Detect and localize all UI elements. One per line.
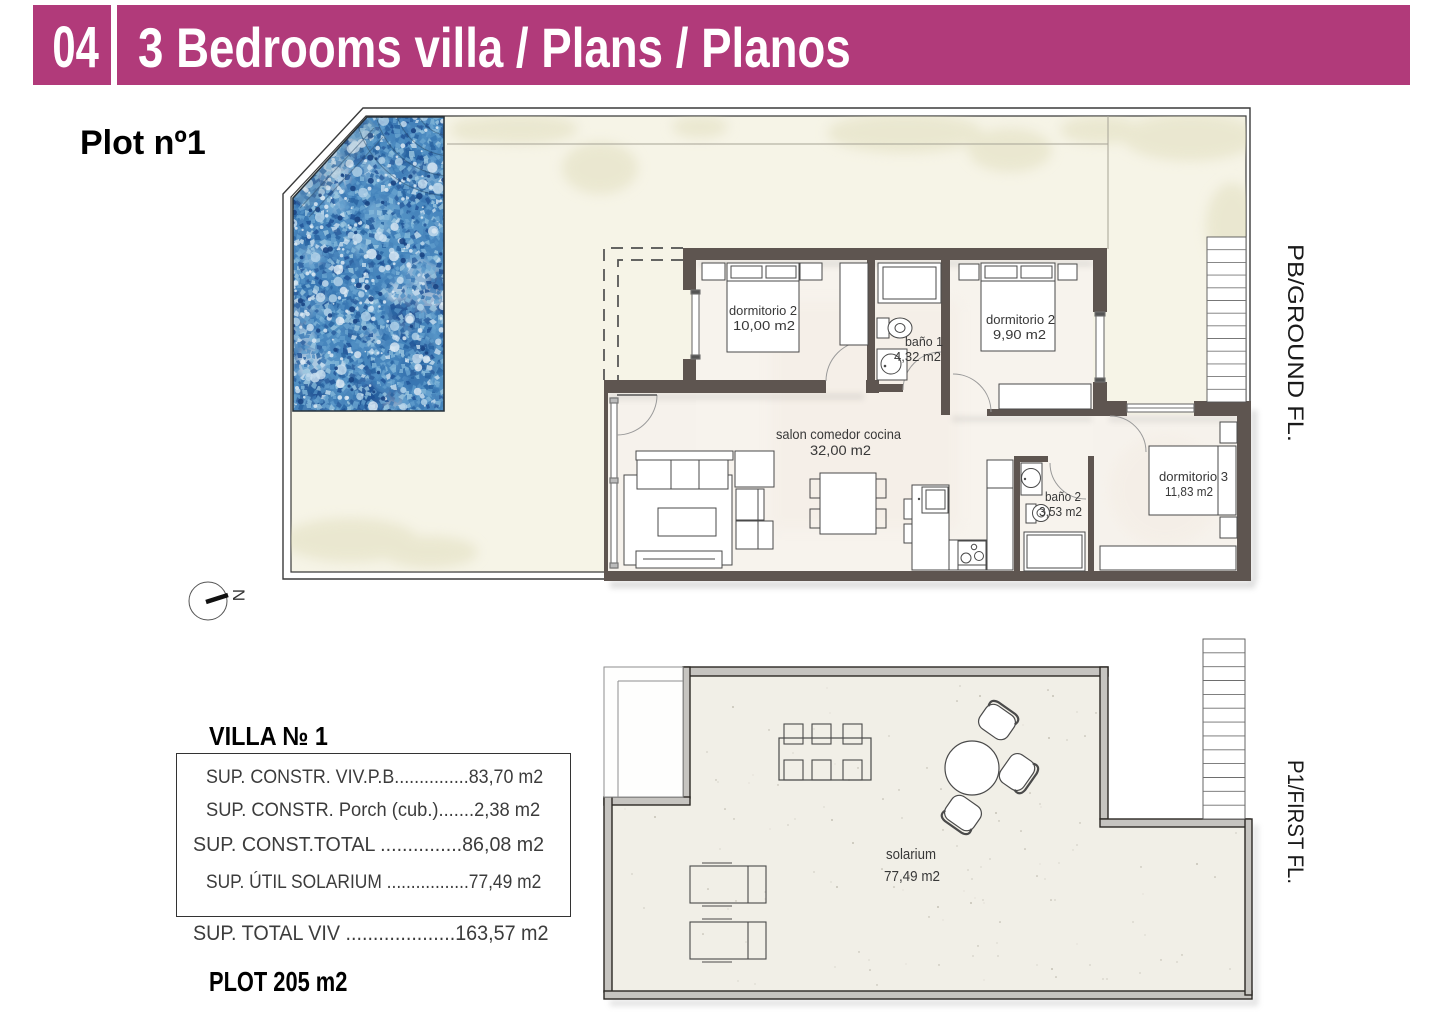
svg-text:11,83 m2: 11,83 m2 (1165, 484, 1213, 499)
svg-text:baño 2: baño 2 (1045, 489, 1081, 504)
svg-text:77,49 m2: 77,49 m2 (884, 868, 940, 885)
svg-text:32,00 m2: 32,00 m2 (810, 442, 871, 458)
svg-text:3,53 m2: 3,53 m2 (1039, 504, 1082, 519)
svg-text:dormitorio 2: dormitorio 2 (729, 303, 797, 318)
svg-text:10,00 m2: 10,00 m2 (733, 318, 795, 333)
svg-text:N: N (229, 589, 248, 601)
svg-text:9,90 m2: 9,90 m2 (993, 327, 1046, 342)
svg-text:P1/FIRST FL.: P1/FIRST FL. (1283, 760, 1308, 884)
svg-text:salon comedor cocina: salon comedor cocina (776, 426, 901, 442)
svg-text:PB/GROUND FL.: PB/GROUND FL. (1283, 244, 1308, 442)
svg-text:dormitorio 3: dormitorio 3 (1159, 469, 1228, 484)
svg-text:dormitorio 2: dormitorio 2 (986, 312, 1055, 327)
svg-text:4,32 m2: 4,32 m2 (894, 349, 941, 364)
svg-text:baño 1: baño 1 (905, 334, 943, 349)
svg-text:solarium: solarium (886, 846, 936, 863)
